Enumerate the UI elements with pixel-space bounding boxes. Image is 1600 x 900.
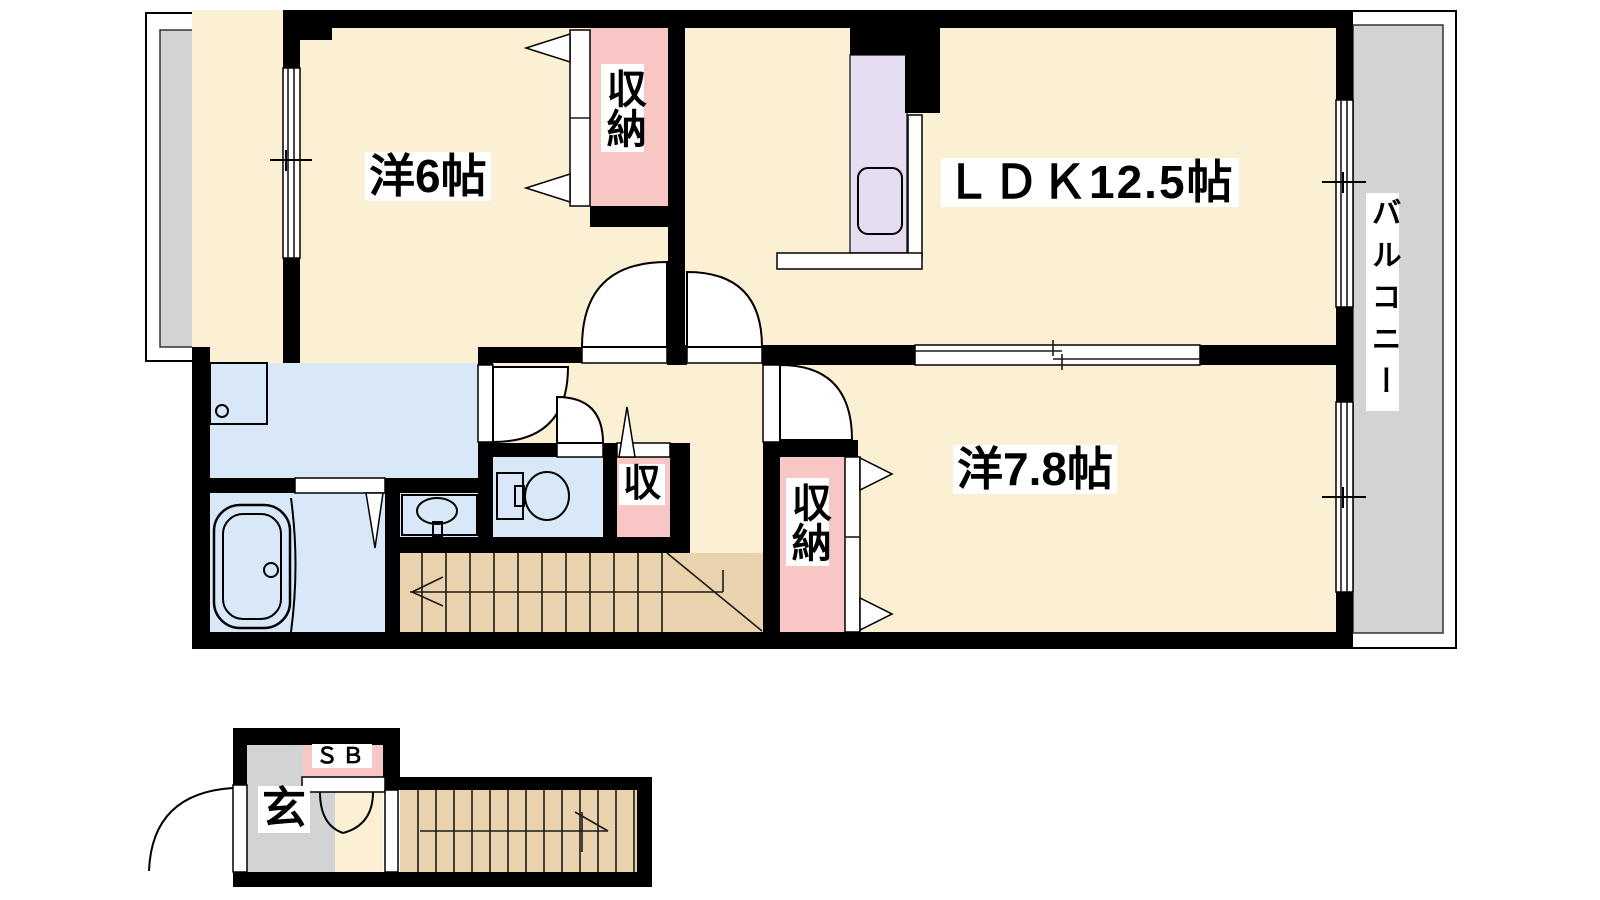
label-closet-small: 収 (619, 464, 665, 505)
floorplan-page: 洋6帖 ＬＤＫ12.5帖 洋7.8帖 収納 収納 収 バルコニー 玄 ＳＢ (0, 0, 1600, 900)
vanity-sink (402, 495, 477, 535)
stairs-doorway (385, 790, 398, 872)
label-shoe-box: ＳＢ (312, 744, 372, 768)
floorplan-canvas (0, 0, 1600, 900)
label-balcony: バルコニー (1366, 193, 1399, 411)
ldk-door-opening (687, 347, 762, 363)
washroom-door-opening (478, 365, 493, 442)
label-closet-right: 収納 (786, 478, 829, 566)
label-room1: 洋6帖 (365, 152, 491, 201)
label-closet-top: 収納 (601, 64, 644, 152)
toilet-door-opening (557, 443, 603, 457)
room2-door-opening (763, 365, 780, 442)
balcony (1345, 11, 1456, 648)
label-ldk: ＬＤＫ12.5帖 (941, 158, 1239, 207)
sliding-partition (915, 340, 1200, 370)
bathroom-floor (210, 493, 385, 632)
toilet-floor (493, 457, 603, 537)
entrance-block (149, 728, 652, 887)
room1-door-opening (582, 347, 667, 363)
shoebox-counter (302, 777, 385, 792)
entry-door-leaf (233, 785, 247, 872)
entry-door-swing (149, 788, 233, 871)
label-room2: 洋7.8帖 (953, 445, 1117, 494)
label-entrance: 玄 (258, 786, 310, 833)
bath-door-opening (295, 478, 385, 493)
